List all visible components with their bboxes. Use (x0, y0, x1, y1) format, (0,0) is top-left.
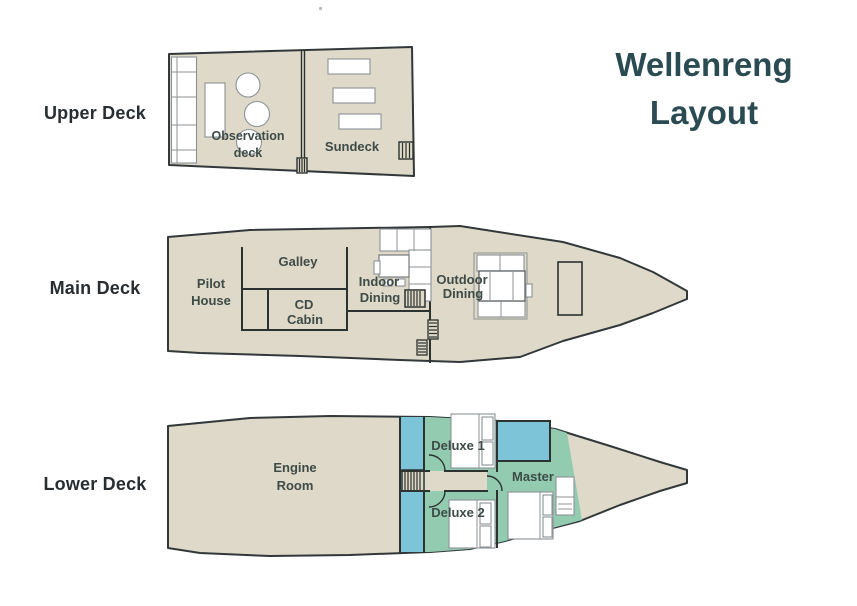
page-title: Wellenreng Layout (548, 42, 857, 138)
engine-room-label-2: Room (277, 478, 314, 493)
upper-deck-label: Upper Deck (15, 103, 175, 124)
corridor (424, 471, 487, 491)
pilot-house-label: Pilot (197, 276, 226, 291)
main-deck-label: Main Deck (15, 278, 175, 299)
ladder-icon (297, 158, 307, 173)
galley-label: Galley (278, 254, 318, 269)
engine-room-label: Engine (273, 460, 316, 475)
master-label: Master (512, 469, 554, 484)
round-table-1 (236, 73, 260, 97)
deluxe1-label: Deluxe 1 (431, 438, 484, 453)
page-title-line2: Layout (548, 88, 857, 138)
upper-deck-plan: Observation deck Sundeck (160, 35, 430, 185)
master-cabinet (556, 477, 574, 515)
deck-layout-page: Wellenreng Layout Upper Deck Main Deck L… (0, 0, 857, 606)
sun-lounger-1 (328, 59, 370, 74)
sundeck-label: Sundeck (325, 139, 380, 154)
deluxe2-label: Deluxe 2 (431, 505, 484, 520)
sun-lounger-3 (339, 114, 381, 129)
stairs-icon (402, 470, 424, 491)
side-bench (172, 57, 197, 163)
cd-cabin-label-2: Cabin (287, 312, 323, 327)
master-bed (508, 492, 553, 539)
indoor-dining-label-2: Dining (360, 290, 400, 305)
main-deck-plan: Pilot House Galley CD Cabin Indoor Dinin… (160, 218, 720, 373)
cd-cabin-label: CD (295, 297, 314, 312)
outdoor-dining-label: Outdoor (436, 272, 487, 287)
observation-deck-label-2: deck (234, 146, 263, 160)
observation-deck-label: Observation (212, 129, 285, 143)
stairs-icon (405, 290, 425, 307)
indoor-dining-label: Indoor (359, 274, 399, 289)
stray-mark (319, 7, 322, 10)
sun-lounger-2 (333, 88, 375, 103)
lower-deck-plan: Engine Room Deluxe 1 Deluxe 2 Master (160, 400, 720, 565)
ladder-icon (428, 320, 438, 339)
ladder-icon (417, 340, 427, 355)
master-bathroom (497, 421, 550, 461)
outdoor-dining-label-2: Dining (443, 286, 483, 301)
round-table-2 (245, 102, 270, 127)
lower-deck-label: Lower Deck (15, 474, 175, 495)
pilot-house-label-2: House (191, 293, 231, 308)
page-title-line1: Wellenreng (548, 42, 857, 88)
ladder-icon (399, 142, 413, 159)
